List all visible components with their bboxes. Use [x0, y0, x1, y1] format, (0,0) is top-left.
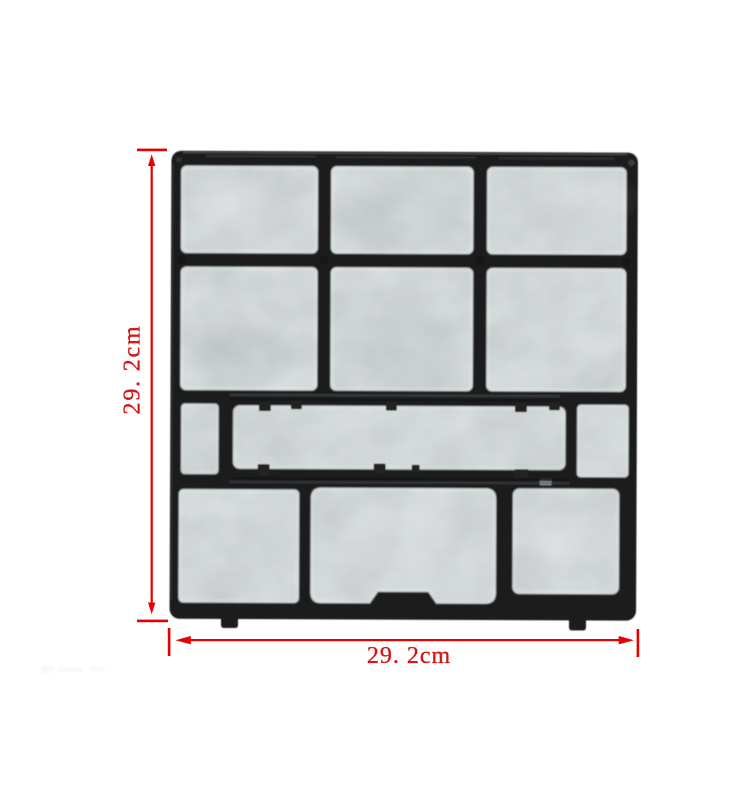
svg-text:29. 2cm: 29. 2cm [367, 643, 451, 669]
svg-text:29. 2cm: 29. 2cm [120, 325, 146, 415]
